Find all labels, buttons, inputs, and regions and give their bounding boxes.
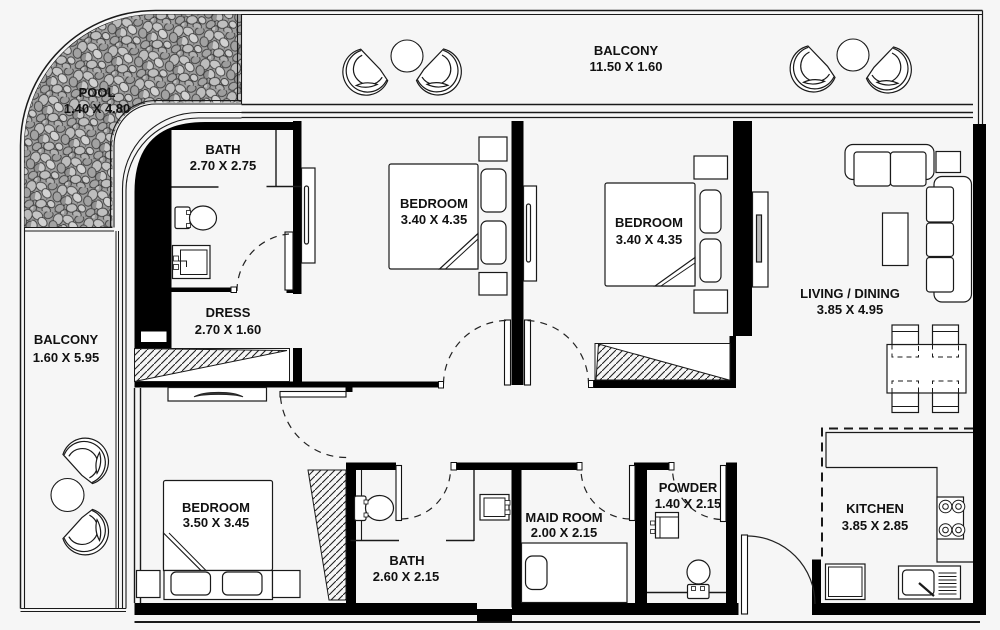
svg-text:BEDROOM: BEDROOM (400, 196, 468, 211)
svg-text:BEDROOM: BEDROOM (182, 500, 250, 515)
svg-text:3.85 X 2.85: 3.85 X 2.85 (842, 518, 909, 533)
svg-text:2.60 X 2.15: 2.60 X 2.15 (373, 569, 440, 584)
svg-text:LIVING / DINING: LIVING / DINING (800, 286, 900, 301)
svg-text:POWDER: POWDER (659, 480, 718, 495)
svg-text:KITCHEN: KITCHEN (846, 501, 904, 516)
svg-text:POOL: POOL (79, 85, 116, 100)
svg-text:BATH: BATH (389, 553, 424, 568)
svg-text:MAID ROOM: MAID ROOM (525, 510, 602, 525)
svg-text:BEDROOM: BEDROOM (615, 215, 683, 230)
svg-text:11.50 X 1.60: 11.50 X 1.60 (589, 59, 662, 74)
svg-text:2.70 X 1.60: 2.70 X 1.60 (195, 322, 262, 337)
svg-text:BATH: BATH (205, 142, 240, 157)
svg-text:BALCONY: BALCONY (594, 43, 659, 58)
svg-text:1.40 X 4.80: 1.40 X 4.80 (64, 101, 131, 116)
svg-text:BALCONY: BALCONY (34, 332, 99, 347)
svg-text:2.00 X 2.15: 2.00 X 2.15 (531, 525, 598, 540)
svg-text:3.50 X 3.45: 3.50 X 3.45 (183, 515, 250, 530)
svg-text:DRESS: DRESS (206, 305, 251, 320)
svg-text:1.40 X 2.15: 1.40 X 2.15 (655, 496, 722, 511)
svg-text:3.40 X 4.35: 3.40 X 4.35 (616, 232, 683, 247)
svg-text:3.85 X 4.95: 3.85 X 4.95 (817, 302, 884, 317)
svg-text:2.70 X 2.75: 2.70 X 2.75 (190, 158, 257, 173)
svg-text:3.40 X 4.35: 3.40 X 4.35 (401, 212, 468, 227)
svg-text:1.60 X 5.95: 1.60 X 5.95 (33, 350, 100, 365)
